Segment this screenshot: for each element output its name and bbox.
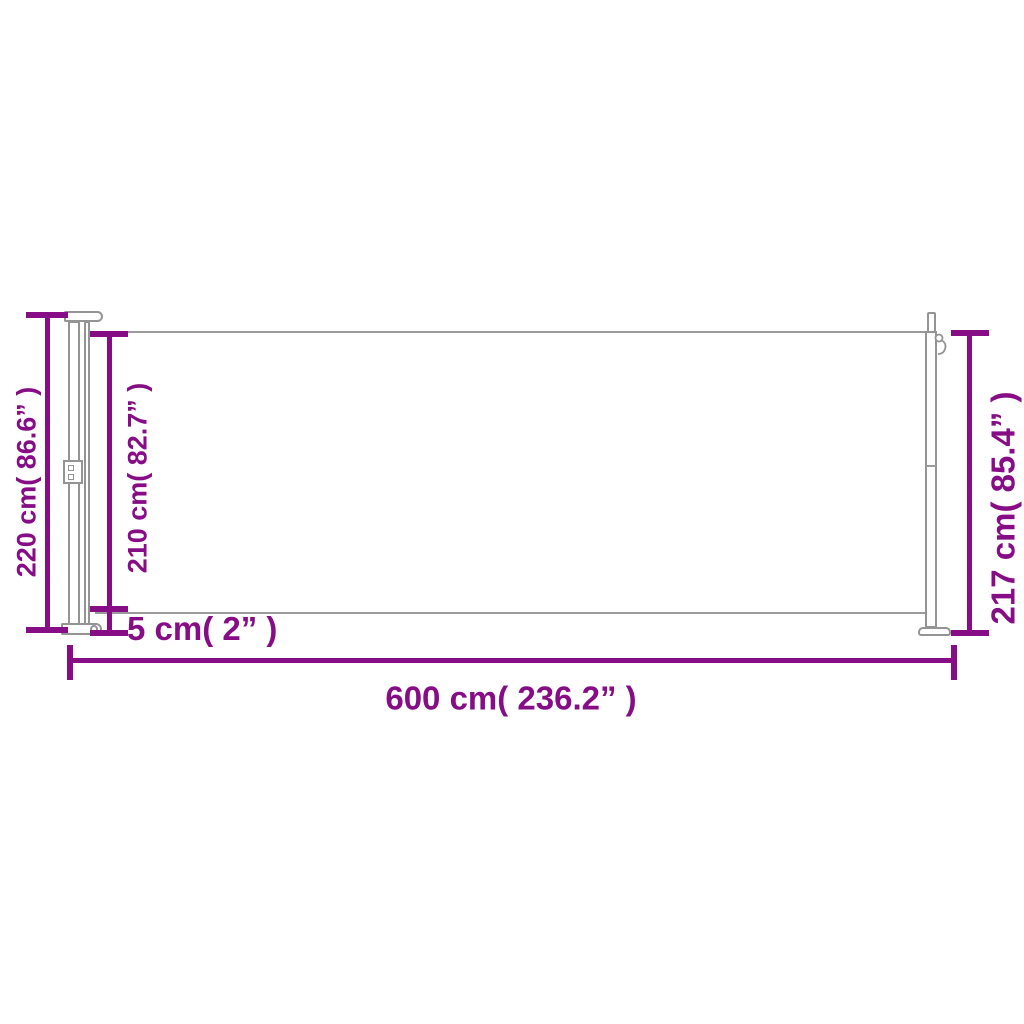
dim-total-height-cap-top — [26, 312, 68, 318]
dim-total-length-label: 600 cm( 236.2” ) — [385, 682, 636, 715]
left-post-fabric-rail — [84, 321, 90, 625]
dim-total-height-line — [45, 314, 50, 631]
right-post-joint-line — [926, 465, 936, 467]
dim-total-height-label: 220 cm( 86.6” ) — [14, 387, 41, 578]
dim-total-length-cap-right — [951, 645, 957, 680]
right-post-pull-hook — [933, 332, 949, 356]
dim-pole-height-cap-bottom — [951, 630, 989, 636]
dim-clearance-cap-bottom — [90, 630, 128, 636]
bracket-screw-notch — [68, 465, 74, 471]
dim-total-height-cap-bottom — [26, 627, 68, 633]
awning-fabric-top-edge — [95, 331, 927, 333]
right-post-top-stub — [927, 312, 936, 333]
dim-pole-height-cap-top — [951, 330, 989, 336]
product-dimension-diagram: 220 cm( 86.6” ) 210 cm( 82.7” ) 5 cm( 2”… — [0, 0, 1024, 1024]
dim-clearance-label: 5 cm( 2” ) — [127, 612, 277, 645]
dim-pole-height-label: 217 cm( 85.4” ) — [987, 392, 1020, 625]
dim-fabric-height-label: 210 cm( 82.7” ) — [125, 383, 152, 574]
right-post-foot — [918, 627, 951, 636]
dim-total-length-line — [70, 658, 954, 663]
dim-pole-height-line — [967, 333, 972, 634]
dim-fabric-height-line — [107, 334, 112, 612]
left-post-wall-bracket — [63, 460, 83, 484]
right-post-tube — [925, 331, 937, 628]
bracket-screw-notch — [68, 474, 74, 480]
dim-total-length-cap-left — [67, 645, 73, 680]
dim-fabric-height-cap-top — [90, 331, 128, 337]
